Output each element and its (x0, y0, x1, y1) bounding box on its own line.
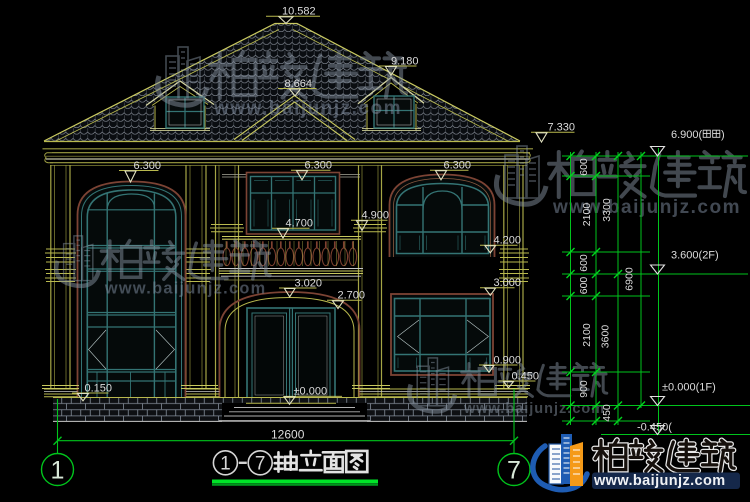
svg-text:-0.450(: -0.450( (637, 422, 672, 434)
svg-text:3600: 3600 (600, 325, 612, 349)
svg-text:6.900(: 6.900( (671, 129, 703, 141)
svg-text:www.baijunjz.com: www.baijunjz.com (463, 401, 605, 417)
svg-text:7: 7 (255, 454, 266, 475)
svg-text:12600: 12600 (271, 428, 305, 442)
svg-text:www.baijunjz.com: www.baijunjz.com (593, 473, 726, 489)
svg-text:600: 600 (578, 277, 590, 295)
svg-text:600: 600 (578, 254, 590, 272)
svg-text:600: 600 (578, 158, 590, 176)
svg-text:±0.000: ±0.000 (294, 386, 328, 398)
svg-text:2100: 2100 (581, 203, 593, 227)
svg-text:2.700: 2.700 (338, 290, 366, 302)
svg-text:www.baijunjz.com: www.baijunjz.com (213, 98, 402, 119)
svg-text:900: 900 (578, 380, 590, 398)
svg-text:±0.000(1F): ±0.000(1F) (662, 382, 716, 394)
svg-text:6900: 6900 (624, 267, 636, 291)
svg-text:3300: 3300 (601, 198, 613, 222)
svg-text:7: 7 (507, 457, 521, 485)
svg-text:7.330: 7.330 (548, 122, 576, 134)
svg-text:www.baijunjz.com: www.baijunjz.com (104, 279, 267, 297)
svg-text:450: 450 (601, 404, 613, 422)
svg-text:): ) (721, 129, 725, 141)
svg-text:1: 1 (51, 457, 65, 485)
svg-text:2100: 2100 (581, 323, 593, 347)
svg-text:3.600(2F): 3.600(2F) (671, 250, 719, 262)
svg-text:1: 1 (220, 454, 231, 475)
